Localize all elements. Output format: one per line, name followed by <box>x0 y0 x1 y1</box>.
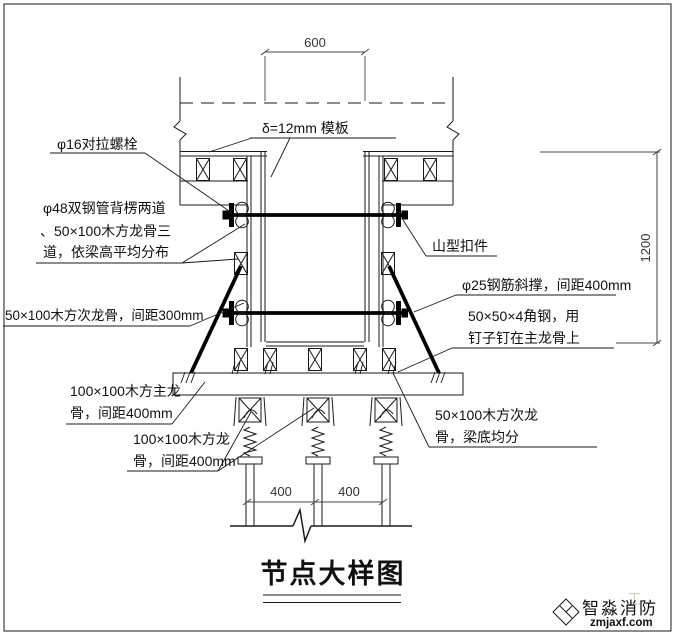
dimension-beam-width: 600 <box>261 35 369 101</box>
logo-domain-text: zmjaxf.com <box>590 617 653 629</box>
dim-1200-value: 1200 <box>638 234 653 263</box>
concrete-slab-outline <box>174 77 459 205</box>
slab-formwork-left <box>180 152 267 206</box>
svg-text:道，依梁高平均分布: 道，依梁高平均分布 <box>43 244 169 260</box>
svg-text:骨，梁底均分: 骨，梁底均分 <box>435 429 519 445</box>
wood-joist-icon <box>234 159 247 181</box>
beam-bottom-form <box>232 342 396 374</box>
jack-post <box>234 397 266 526</box>
node-detail-drawing: 600 <box>0 0 675 635</box>
wood-joist-icon <box>424 159 437 181</box>
wale-wood-block-left <box>235 253 248 275</box>
logo[interactable]: 工 智淼消防 zmjaxf.com <box>553 591 658 629</box>
label-diagonal-brace: φ25钢筋斜撑，间距400mm <box>414 277 631 312</box>
drawing-title: 节点大样图 <box>261 558 406 603</box>
svg-text:δ=12mm 模板: δ=12mm 模板 <box>262 120 349 136</box>
dim-600-value: 600 <box>304 35 326 50</box>
svg-text:100×100木方龙: 100×100木方龙 <box>133 431 230 447</box>
svg-text:骨，间距400mm: 骨，间距400mm <box>70 405 173 421</box>
svg-text:φ25钢筋斜撑，间距400mm: φ25钢筋斜撑，间距400mm <box>462 277 631 293</box>
svg-text:50×100木方次龙: 50×100木方次龙 <box>435 407 538 423</box>
svg-text:φ16对拉螺栓: φ16对拉螺栓 <box>57 136 138 152</box>
beam-side-form-right <box>365 152 383 347</box>
drawing-canvas: 600 <box>0 0 675 635</box>
jack-post <box>302 397 334 526</box>
dim-400-left: 400 <box>270 484 292 499</box>
tie-bolt-upper <box>223 202 409 228</box>
label-main-joist: 100×100木方主龙 骨，间距400mm <box>66 382 205 424</box>
svg-text:100×100木方主龙: 100×100木方主龙 <box>70 383 181 399</box>
svg-text:、50×100木方龙骨三: 、50×100木方龙骨三 <box>40 223 171 239</box>
page-title: 节点大样图 <box>261 558 406 589</box>
svg-text:50×100木方次龙骨，间距300mm: 50×100木方次龙骨，间距300mm <box>5 308 203 323</box>
label-wale: φ48双钢管背楞两道 、50×100木方龙骨三 道，依梁高平均分布 <box>36 200 245 263</box>
svg-text:φ48双钢管背楞两道: φ48双钢管背楞两道 <box>43 200 166 216</box>
logo-diamond-icon <box>553 599 579 625</box>
svg-text:山型扣件: 山型扣件 <box>432 238 488 254</box>
label-secondary-joist: 50×100木方次龙骨，间距300mm <box>3 303 244 326</box>
beam-side-form-left <box>247 152 265 347</box>
svg-text:50×50×4角钢，用: 50×50×4角钢，用 <box>468 308 579 324</box>
wood-joist-icon <box>385 159 398 181</box>
label-beam-bottom-joist: 50×100木方次龙 骨，梁底均分 <box>393 373 597 447</box>
main-bearer <box>173 373 463 395</box>
ground-line <box>230 510 412 541</box>
svg-text:钉子钉在主龙骨上: 钉子钉在主龙骨上 <box>468 330 580 346</box>
shoring-posts <box>234 397 402 526</box>
label-formwork: δ=12mm 模板 <box>209 120 396 177</box>
logo-name-text: 智淼消防 <box>582 599 658 618</box>
tie-bolt-lower <box>223 300 409 326</box>
dim-400-right: 400 <box>338 484 360 499</box>
slab-formwork-right <box>363 152 453 206</box>
label-clamp: 山型扣件 <box>403 220 497 256</box>
dimension-post-spacing: 400 400 <box>243 484 387 505</box>
wood-joist-icon <box>197 159 210 181</box>
label-angle-steel: 50×50×4角钢，用 钉子钉在主龙骨上 <box>398 308 614 372</box>
jack-post <box>370 397 402 526</box>
